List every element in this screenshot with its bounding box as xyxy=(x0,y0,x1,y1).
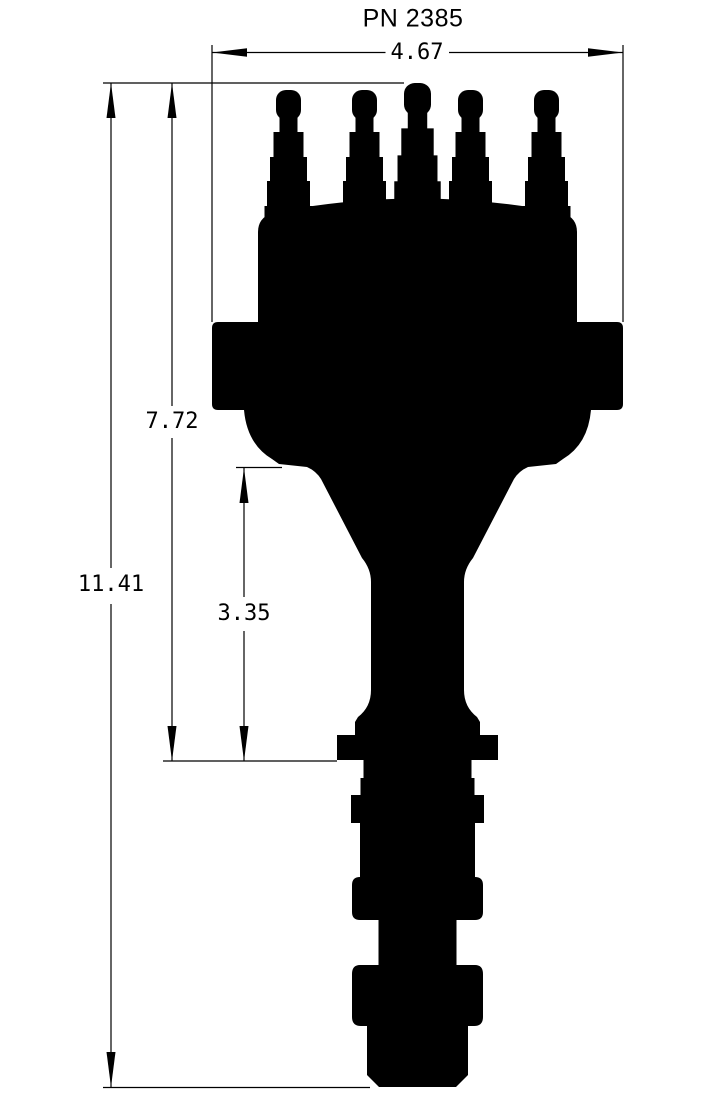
cap-body xyxy=(258,199,577,323)
drawing-title: PN 2385 xyxy=(363,5,464,34)
distributor-silhouette xyxy=(212,83,623,1087)
dim-label-width: 4.67 xyxy=(386,41,449,65)
technical-drawing-sheet: PN 2385 4.67 7.72 11.41 3.35 xyxy=(0,0,714,1103)
arrow-up-icon xyxy=(107,83,116,118)
dim-label-overall-height: 11.41 xyxy=(73,573,149,597)
arrow-down-icon xyxy=(168,726,177,761)
dim-label-lower-height: 3.35 xyxy=(213,602,276,626)
arrow-right-icon xyxy=(588,48,623,56)
distributor-drawing-svg xyxy=(0,0,714,1103)
arrow-up-icon xyxy=(168,83,177,118)
arrow-left-icon xyxy=(212,48,247,56)
arrow-down-icon xyxy=(107,1052,116,1087)
arrow-down-icon xyxy=(240,726,249,761)
housing-and-shaft xyxy=(212,322,623,1087)
arrow-up-icon xyxy=(240,468,249,503)
dim-label-upper-height: 7.72 xyxy=(141,410,204,434)
